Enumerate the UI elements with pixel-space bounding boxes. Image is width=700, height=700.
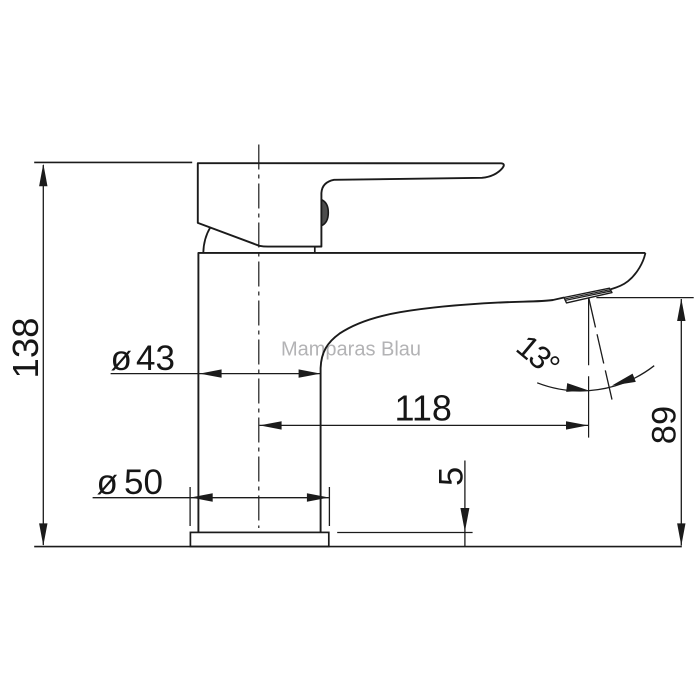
svg-text:50: 50 [124,463,163,502]
svg-text:ø: ø [97,463,118,502]
svg-text:138: 138 [5,318,46,379]
svg-text:89: 89 [646,406,684,444]
svg-text:5: 5 [433,467,471,486]
svg-text:43: 43 [136,339,175,378]
svg-text:Mamparas Blau: Mamparas Blau [281,339,421,361]
svg-text:118: 118 [394,388,451,429]
svg-text:ø: ø [111,339,132,378]
